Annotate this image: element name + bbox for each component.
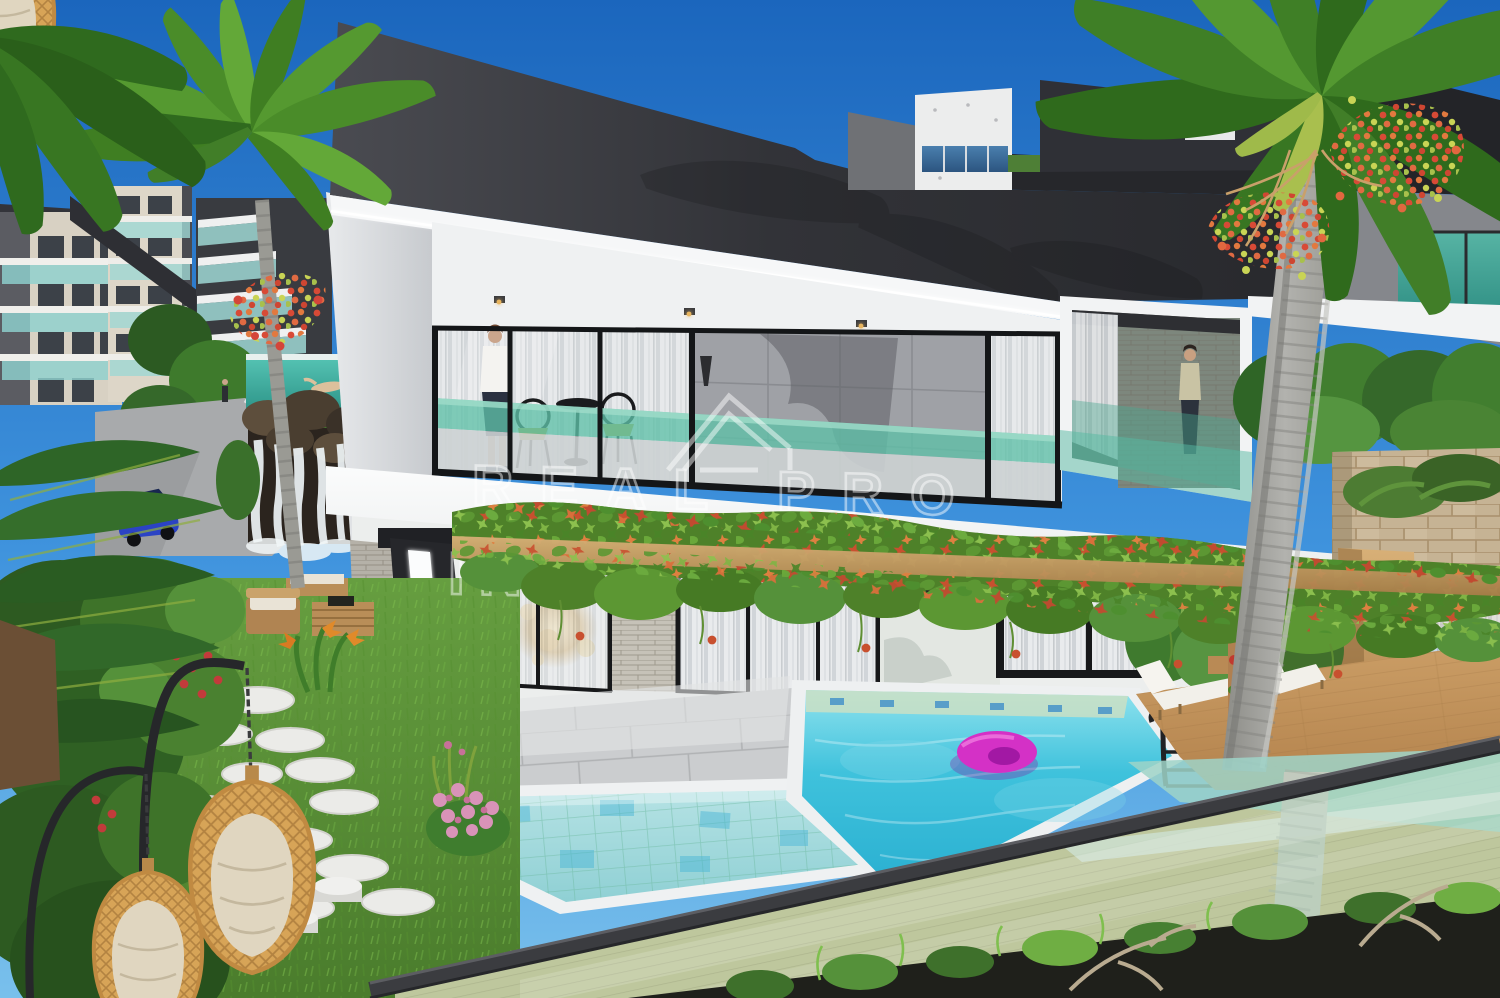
right-palm-tree [1034,0,1500,772]
scene-foreground [0,0,1500,998]
glass-pool-fence [370,737,1500,998]
villa-render-photo: REAL PRO INVESTMENTS [0,0,1500,998]
pergola-vine-canopy [452,502,1500,678]
